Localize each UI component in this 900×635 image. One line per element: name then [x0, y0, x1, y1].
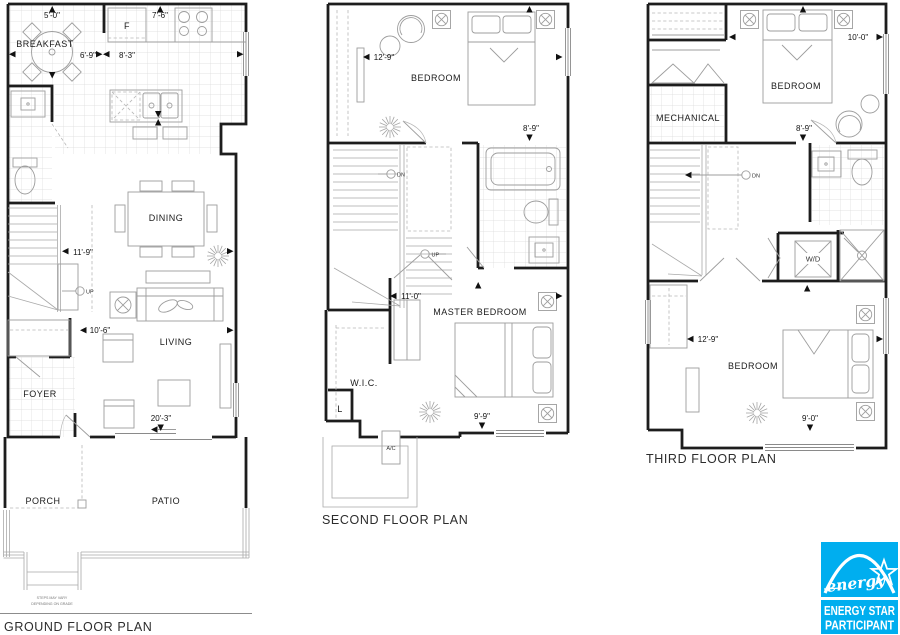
up-label: UP: [432, 253, 440, 259]
dn-label: DN: [397, 173, 405, 179]
steps-note-line1: STEPS MAY VARY: [37, 596, 68, 600]
dim-bedroom-width: 12'-9": [374, 53, 395, 62]
bedroom-bottom-label: BEDROOM: [728, 361, 778, 371]
window-right-top: [882, 34, 889, 94]
ac-label: A/C: [386, 446, 395, 452]
breakfast-label: BREAKFAST: [16, 39, 74, 49]
dim-kitchen-depth: 8'-3": [119, 51, 135, 60]
dim-bedroom-bottom-depth: 9'-0": [802, 414, 818, 423]
dim-patio-width: 20'-3": [151, 414, 172, 423]
window-bottom: [763, 444, 855, 453]
window-right-bottom: [882, 298, 889, 354]
foyer-label: FOYER: [23, 389, 57, 399]
second-floor-title: SECOND FLOOR PLAN: [322, 513, 468, 527]
mechanical-label: MECHANICAL: [656, 113, 720, 123]
linen-label: L: [337, 404, 343, 414]
dim-bedroom-depth: 8'-9": [523, 124, 539, 133]
dining-label: DINING: [149, 213, 184, 223]
window-right-kitchen: [242, 32, 249, 76]
window-right-living: [232, 383, 239, 417]
dim-breakfast-width: 5'-0": [44, 11, 60, 20]
logo-line2: PARTICIPANT: [825, 619, 894, 633]
living-label: LIVING: [160, 337, 193, 347]
dim-bedroom-top-width: 10'-0": [848, 33, 869, 42]
window-master-bottom: [494, 429, 546, 439]
dim-kitchen-width: 7'-6": [152, 11, 168, 20]
dn-label: DN: [752, 174, 760, 180]
ground-floor-title: GROUND FLOOR PLAN: [4, 620, 152, 634]
dim-bedroom-bottom-width: 12'-9": [698, 335, 719, 344]
bedroom-label: BEDROOM: [411, 73, 461, 83]
master-bedroom-label: MASTER BEDROOM: [433, 307, 527, 317]
fridge-label: F: [124, 21, 130, 31]
dim-breakfast-depth: 6'-9": [80, 51, 96, 60]
dim-bedroom-top-depth: 8'-9": [796, 124, 812, 133]
logo-line1: ENERGY STAR: [824, 604, 895, 618]
bedroom-top-label: BEDROOM: [771, 81, 821, 91]
floor-plan-sheet: UP: [0, 0, 900, 635]
dim-dining-width: 11'-9": [73, 248, 93, 257]
steps-note-line2: DEPENDING ON GRADE: [31, 602, 73, 606]
floor-plans-canvas: UP: [0, 0, 900, 635]
dim-master-width: 11'-0": [401, 292, 421, 301]
third-floor-title: THIRD FLOOR PLAN: [646, 452, 776, 466]
dim-master-depth: 9'-9": [474, 412, 490, 421]
wd-label: W/D: [806, 255, 821, 264]
wic-label: W.I.C.: [350, 378, 378, 388]
porch-label: PORCH: [25, 496, 60, 506]
window-right-bedroom: [564, 28, 571, 76]
energy-star-logo: energy ENERGY STAR PARTICIPANT: [821, 542, 898, 634]
dim-living-width: 10'-6": [90, 326, 111, 335]
patio-label: PATIO: [152, 496, 180, 506]
up-label: UP: [86, 290, 94, 296]
window-left: [644, 300, 651, 344]
